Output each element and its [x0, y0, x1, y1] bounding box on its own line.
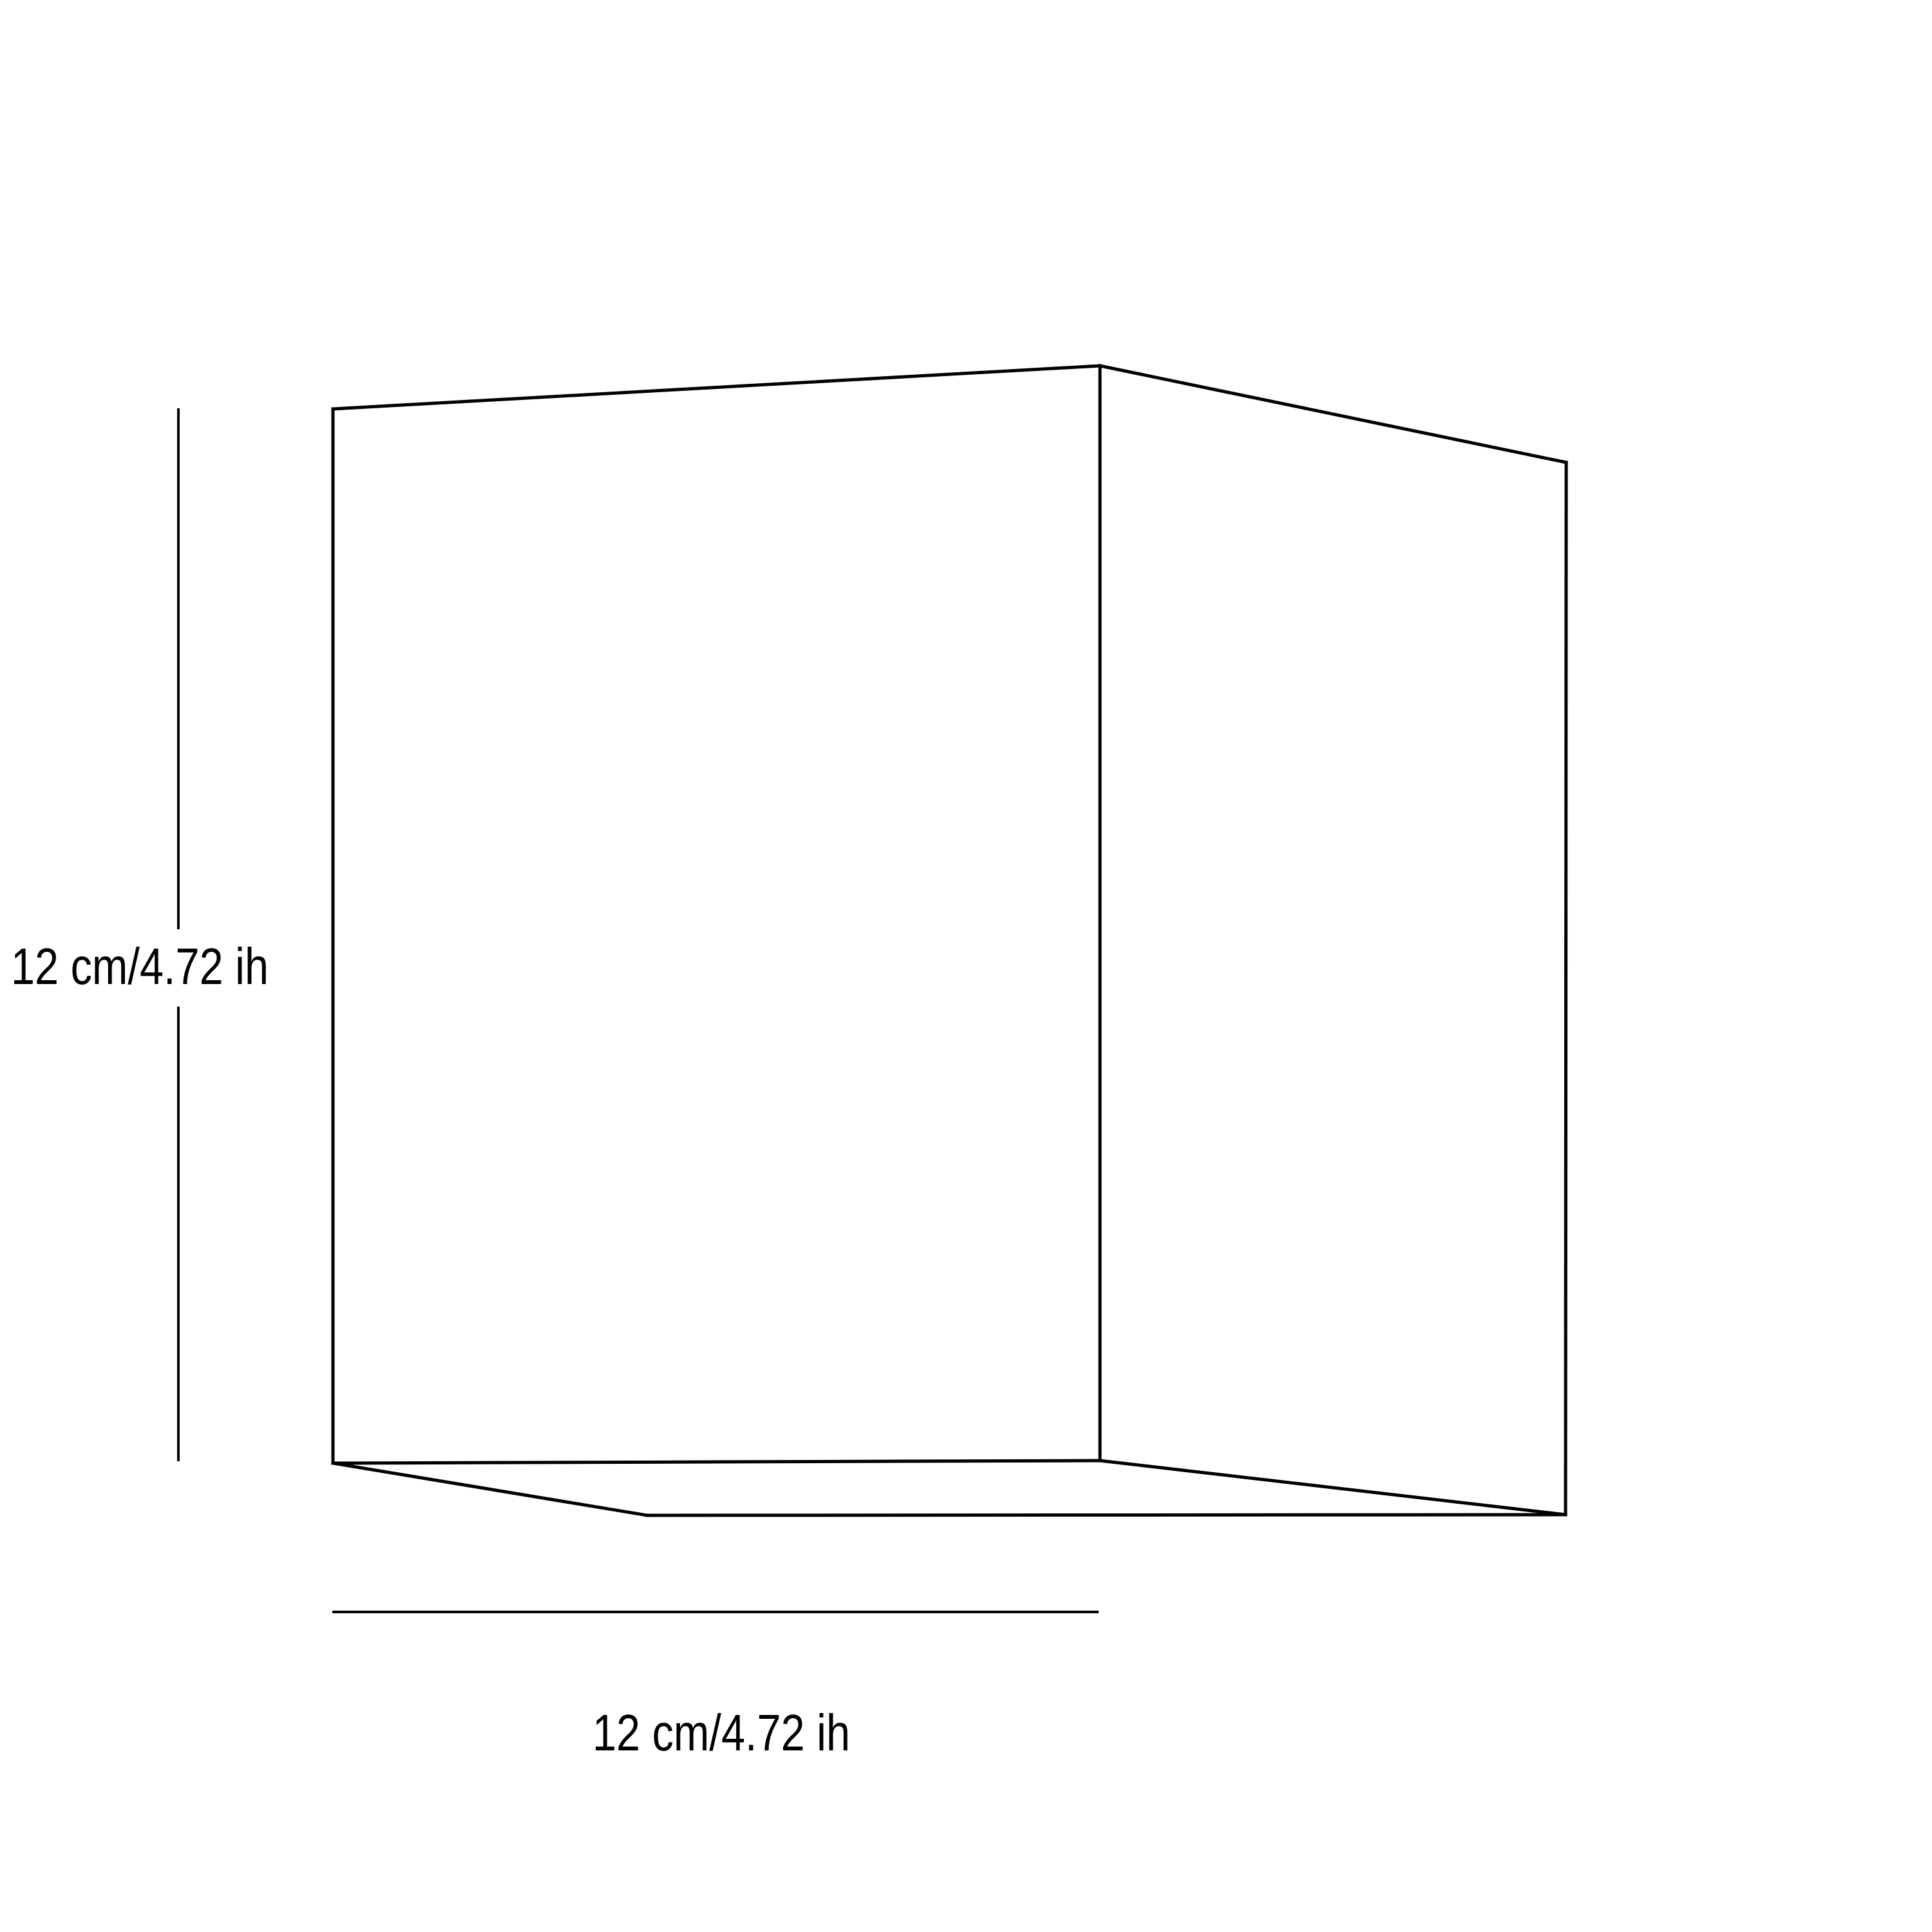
front-top-edge: [333, 366, 1100, 409]
right-bottom-edge: [1100, 1461, 1566, 1515]
width-dimension-label: 12 cm/4.72 ih: [592, 1704, 850, 1761]
bottom-left-edge: [333, 1463, 647, 1515]
dimension-lines: [178, 408, 1099, 1612]
box-edges: [333, 366, 1566, 1515]
bottom-back-edge: [647, 1515, 1566, 1515]
front-bottom-edge: [333, 1461, 1100, 1463]
dimension-drawing: 12 cm/4.72 ih 12 cm/4.72 ih: [0, 0, 1932, 1932]
right-top-edge: [1100, 366, 1566, 462]
height-dimension-label: 12 cm/4.72 ih: [11, 938, 269, 995]
box-dimension-diagram: 12 cm/4.72 ih 12 cm/4.72 ih: [0, 0, 1932, 1932]
back-right-edge: [1566, 462, 1566, 1515]
